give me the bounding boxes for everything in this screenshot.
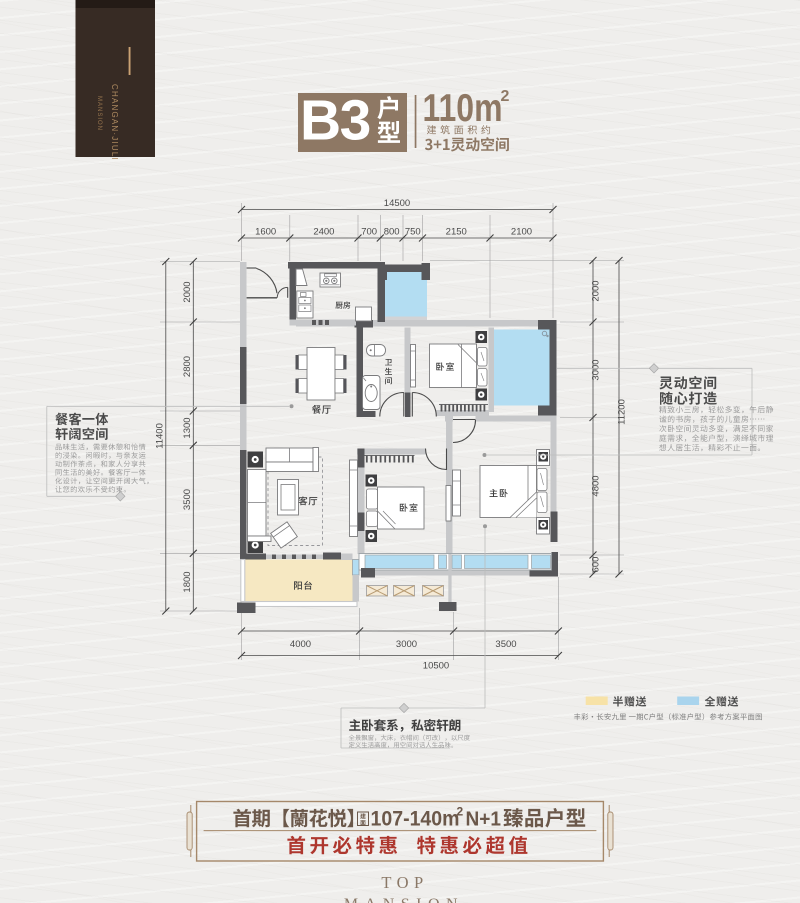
svg-text:3000: 3000 bbox=[591, 359, 602, 380]
svg-text:1800: 1800 bbox=[182, 571, 193, 592]
svg-text:1300: 1300 bbox=[182, 417, 193, 438]
svg-text:800: 800 bbox=[384, 227, 400, 238]
svg-text:3500: 3500 bbox=[182, 489, 193, 510]
svg-text:B3: B3 bbox=[300, 89, 370, 153]
svg-text:107-140m: 107-140m bbox=[371, 808, 460, 831]
svg-text:110m: 110m bbox=[423, 86, 503, 130]
svg-text:TOP: TOP bbox=[381, 873, 428, 892]
svg-text:4800: 4800 bbox=[591, 475, 602, 496]
svg-text:10500: 10500 bbox=[423, 661, 449, 672]
svg-text:750: 750 bbox=[405, 227, 421, 238]
svg-text:11400: 11400 bbox=[155, 423, 166, 449]
svg-text:600: 600 bbox=[591, 557, 602, 573]
svg-text:1600: 1600 bbox=[255, 227, 276, 238]
svg-text:3500: 3500 bbox=[495, 639, 516, 650]
svg-text:11200: 11200 bbox=[617, 399, 628, 425]
svg-text:2000: 2000 bbox=[591, 280, 602, 301]
svg-text:2400: 2400 bbox=[313, 227, 334, 238]
svg-text:MANSION: MANSION bbox=[344, 896, 464, 903]
svg-text:700: 700 bbox=[361, 227, 377, 238]
svg-text:MANSION: MANSION bbox=[96, 96, 102, 131]
svg-text:CHANGAN·JIULI: CHANGAN·JIULI bbox=[110, 84, 119, 161]
svg-text:14500: 14500 bbox=[384, 198, 410, 209]
svg-text:2000: 2000 bbox=[182, 281, 193, 302]
svg-text:N+1: N+1 bbox=[466, 808, 501, 831]
svg-text:2800: 2800 bbox=[182, 356, 193, 377]
svg-text:4000: 4000 bbox=[290, 639, 311, 650]
svg-text:2: 2 bbox=[501, 88, 510, 105]
svg-text:2150: 2150 bbox=[446, 227, 467, 238]
svg-text:3000: 3000 bbox=[396, 639, 417, 650]
svg-text:2: 2 bbox=[457, 805, 464, 819]
svg-text:2100: 2100 bbox=[511, 227, 532, 238]
